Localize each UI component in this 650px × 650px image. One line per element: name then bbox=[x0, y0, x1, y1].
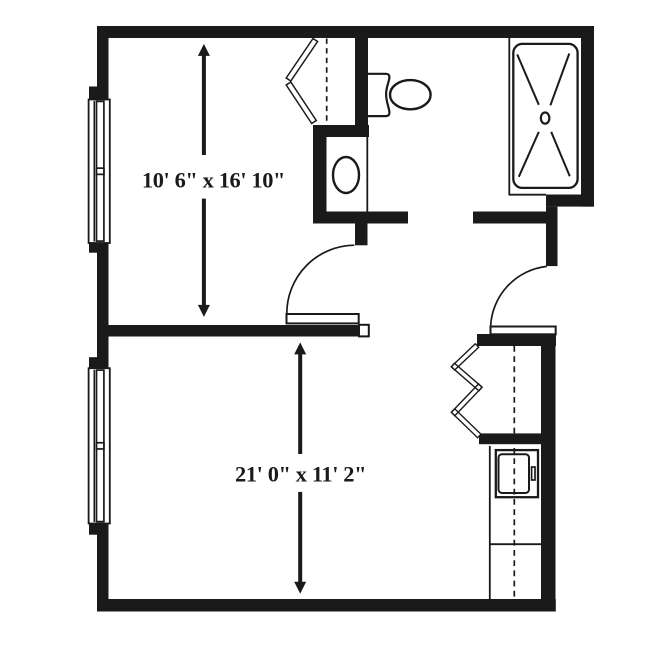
svg-text:10' 6" x 16' 10": 10' 6" x 16' 10" bbox=[142, 167, 285, 192]
svg-text:21' 0" x 11' 2": 21' 0" x 11' 2" bbox=[235, 461, 366, 486]
